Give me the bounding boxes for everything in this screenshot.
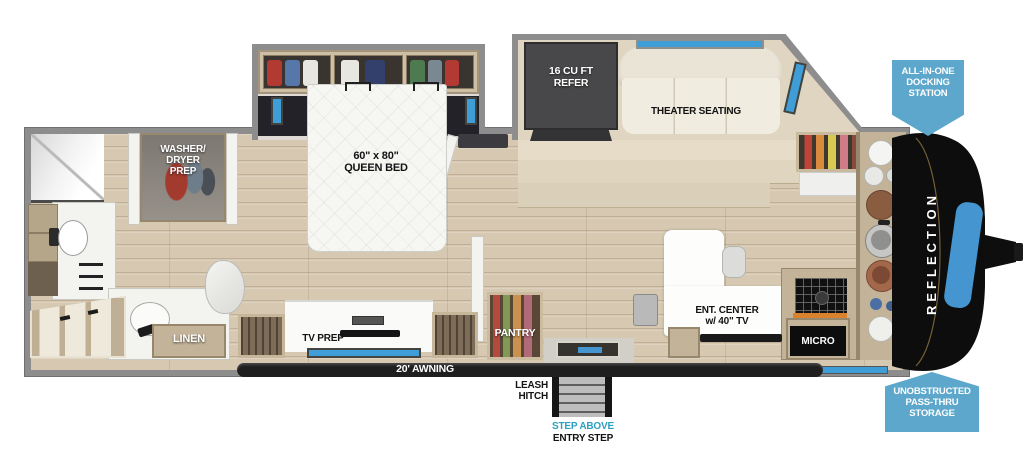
- floor-step: [518, 160, 818, 184]
- step-above-label: STEP ABOVE: [545, 421, 621, 432]
- microwave-front: MICRO: [790, 326, 846, 356]
- entry-mat-center: [578, 347, 602, 353]
- refer-label: 16 CU FT REFER: [524, 66, 618, 90]
- floor-step: [518, 183, 770, 208]
- nightstand-left: [258, 96, 308, 136]
- clothes-item: [445, 60, 459, 86]
- corner-shower-seat: [205, 260, 245, 314]
- bed-handle: [413, 82, 439, 91]
- clothes-item: [267, 60, 282, 86]
- shower-glass: [31, 134, 104, 200]
- tv-prep-label: TV PREP: [294, 333, 352, 344]
- front-cap: [888, 126, 1024, 378]
- side-cabinet: [668, 327, 700, 358]
- linen-label: LINEN: [152, 333, 226, 345]
- stove-burner: [815, 291, 829, 305]
- clothes-item: [303, 60, 318, 86]
- toilet: [58, 220, 88, 256]
- closet-door: [128, 133, 140, 225]
- leash-hitch-label: LEASH HITCH: [492, 380, 548, 402]
- tv-prep-window: [307, 348, 421, 358]
- refrigerator-base: [530, 130, 612, 141]
- queen-bed-label: 60" x 80" QUEEN BED: [307, 150, 445, 175]
- bed-handle: [345, 82, 371, 91]
- awning-bar: 20' AWNING: [237, 363, 823, 377]
- hitch-coupler: [1014, 243, 1023, 261]
- pass-thru-storage-badge: UNOBSTRUCTED PASS-THRU STORAGE: [885, 372, 979, 432]
- dining-chair: [722, 246, 746, 278]
- micro-label: MICRO: [801, 336, 834, 347]
- plate-icon: [864, 166, 884, 186]
- ent-center: [664, 230, 724, 288]
- dish-icon: [870, 298, 882, 310]
- bed-bench: [458, 134, 508, 148]
- tv-prep-counter: [285, 300, 433, 352]
- washer-dryer-label: WASHER/ DRYER PREP: [140, 144, 226, 178]
- closet-door: [226, 133, 238, 225]
- bedroom-window-right: [465, 97, 477, 125]
- floorplan-canvas: 60" x 80" QUEEN BED 16 CU FT REFER THEAT…: [0, 0, 1024, 472]
- sofa-window: [636, 39, 764, 49]
- docking-station-badge: ALL-IN-ONE DOCKING STATION: [892, 60, 964, 136]
- entry-mat: [556, 341, 620, 358]
- pantry: [487, 292, 543, 360]
- shower: [31, 134, 104, 203]
- ent-center-label: ENT. CENTER w/ 40" TV: [666, 305, 788, 327]
- towel-rack: [79, 263, 103, 295]
- awning-label: 20' AWNING: [387, 364, 463, 376]
- wardrobe-right: [432, 312, 478, 358]
- microwave: MICRO: [786, 318, 850, 360]
- bedroom-window-left: [271, 97, 283, 125]
- bath-lower-cabinet: [28, 262, 58, 296]
- stove: [795, 278, 847, 316]
- wall-mounted-unit: [633, 294, 658, 326]
- wardrobe-left: [238, 314, 285, 358]
- entry-step-label: ENTRY STEP: [545, 433, 621, 444]
- tv-prep-speaker: [352, 316, 384, 325]
- brand-logo: REFLECTION: [924, 150, 944, 356]
- entry-steps: [552, 377, 612, 417]
- ent-center-tv: [700, 334, 782, 342]
- pantry-label: PANTRY: [487, 328, 543, 340]
- clothes-item: [285, 60, 300, 86]
- theater-seating-label: THEATER SEATING: [636, 106, 756, 117]
